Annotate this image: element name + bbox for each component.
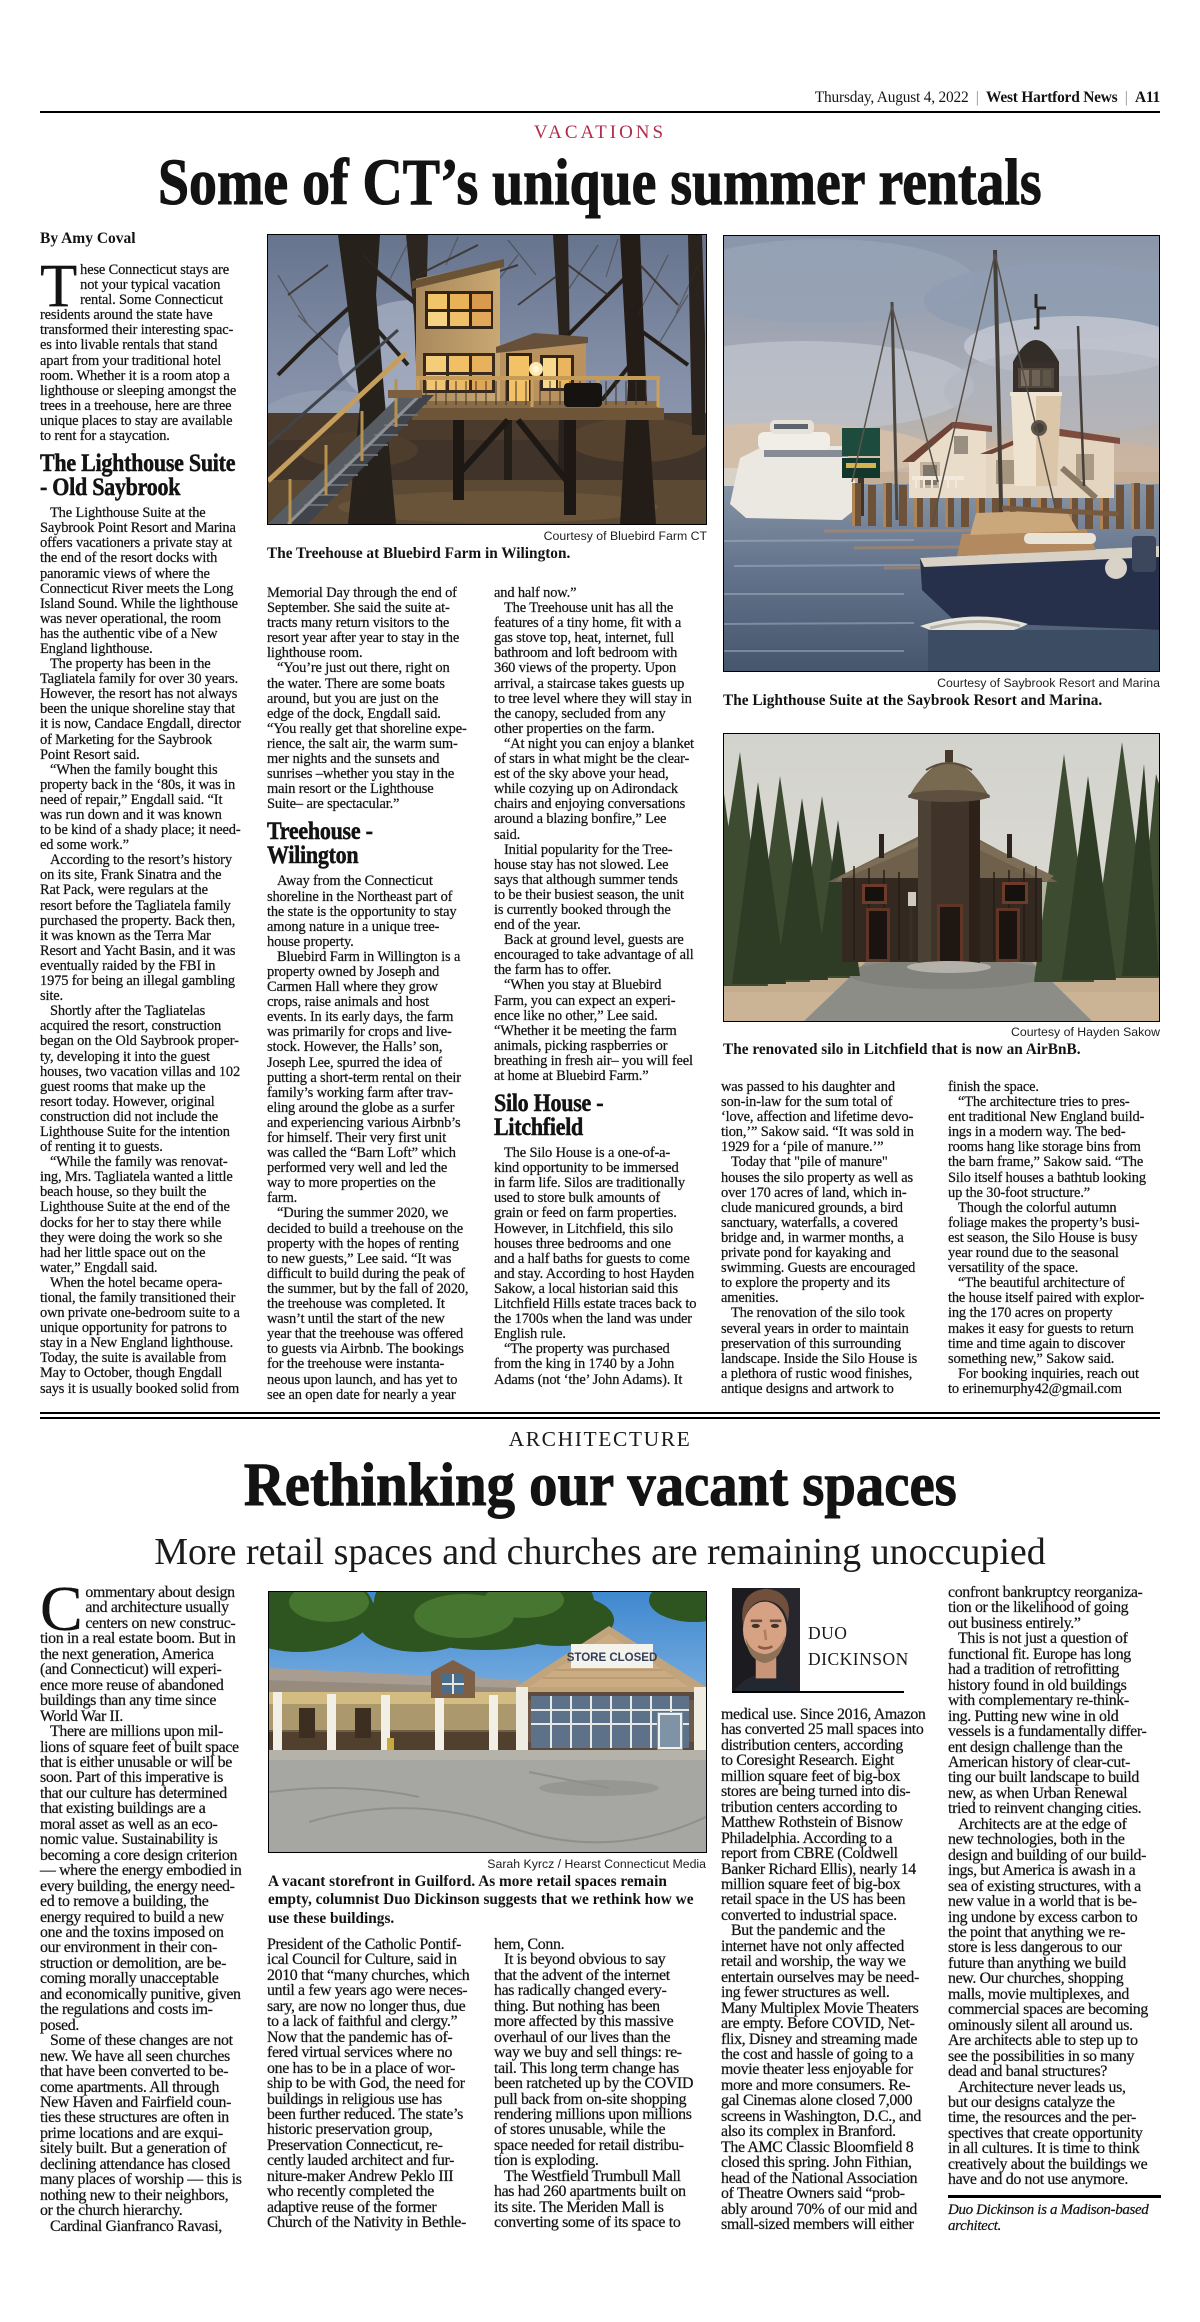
svg-text:STORE CLOSED: STORE CLOSED [567, 1652, 658, 1664]
